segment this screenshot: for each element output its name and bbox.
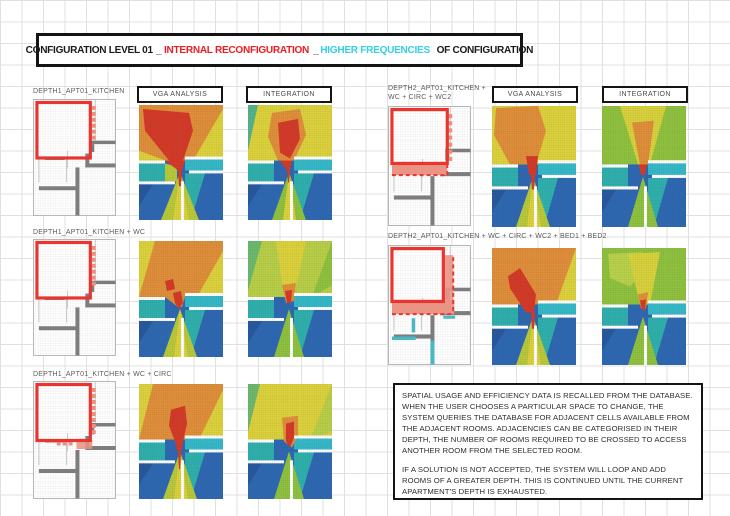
title-seg-black-2: OF CONFIGURATION	[434, 44, 533, 56]
info-paragraph-1: SPATIAL USAGE AND EFFICIENCY DATA IS REC…	[402, 391, 694, 457]
title-seg-black-1: CONFIGURATION LEVEL 01	[26, 44, 153, 56]
integration-heatmap-depth1-kitchen-wc	[248, 241, 332, 357]
vga-heatmap-depth1-kitchen	[139, 105, 223, 220]
vga-heatmap-depth1-kitchen-wc-circ	[139, 384, 223, 499]
info-paragraph-2: IF A SOLUTION IS NOT ACCEPTED, THE SYSTE…	[402, 465, 694, 498]
floor-plan-depth1-kitchen	[33, 99, 116, 216]
left-row3-label: DEPTH1_APT01_KITCHEN + WC + CIRC	[33, 370, 172, 379]
integration-heatmap-depth1-kitchen-wc-circ	[248, 384, 332, 499]
title-seg-cyan: HIGHER FREQUENCIES	[320, 44, 430, 56]
floor-plan-depth2-kitchen-wc-circ-wc2	[388, 106, 471, 226]
floor-plan-depth1-kitchen-wc-circ	[33, 381, 116, 499]
title-seg-red: INTERNAL RECONFIGURATION	[165, 44, 310, 56]
floor-plan-depth2-kitchen-wc-circ-wc2-bed1-bed2	[388, 245, 471, 365]
right-row1-label-line2: WC + CIRC + WC2	[388, 93, 488, 102]
info-box: SPATIAL USAGE AND EFFICIENCY DATA IS REC…	[393, 383, 703, 500]
floor-plan-depth1-kitchen-wc	[33, 239, 116, 356]
right-row1-label: DEPTH2_APT01_KITCHEN + WC + CIRC + WC2	[388, 84, 488, 102]
left-row1-label: DEPTH1_APT01_KITCHEN	[33, 87, 125, 96]
integration-heatmap-depth2-kitchen-wc-circ-wc2	[602, 106, 686, 227]
right-vga-header: VGA ANALYSIS	[492, 86, 578, 103]
right-integration-header: INTEGRATION	[602, 86, 688, 103]
left-integration-header: INTEGRATION	[246, 86, 332, 103]
integration-heatmap-depth2-kitchen-wc-circ-wc2-bed1-bed2	[602, 248, 686, 365]
title-sep-1: _	[156, 44, 161, 56]
right-row1-label-line1: DEPTH2_APT01_KITCHEN +	[388, 84, 488, 93]
vga-heatmap-depth2-kitchen-wc-circ-wc2-bed1-bed2	[492, 248, 576, 365]
analysis-board: { "title": { "seg1": "CONFIGURATION LEVE…	[0, 0, 730, 516]
title-banner: CONFIGURATION LEVEL 01_INTERNAL RECONFIG…	[36, 33, 523, 67]
integration-heatmap-depth1-kitchen	[248, 105, 332, 220]
left-row2-label: DEPTH1_APT01_KITCHEN + WC	[33, 228, 145, 237]
left-vga-header: VGA ANALYSIS	[137, 86, 223, 103]
vga-heatmap-depth2-kitchen-wc-circ-wc2	[492, 106, 576, 227]
right-row2-label: DEPTH2_APT01_KITCHEN + WC + CIRC + WC2 +…	[388, 232, 708, 241]
vga-heatmap-depth1-kitchen-wc	[139, 241, 223, 357]
title-sep-2: _	[313, 44, 318, 56]
